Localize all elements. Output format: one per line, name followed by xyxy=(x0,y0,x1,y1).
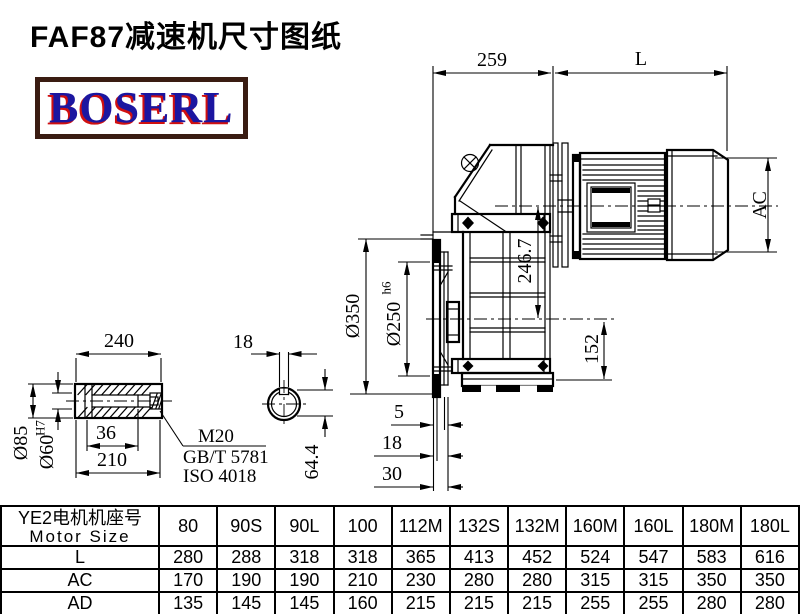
table-cell: 452 xyxy=(508,546,566,569)
thread-standard-iso-label: ISO 4018 xyxy=(183,466,256,487)
dim-30-label: 30 xyxy=(382,463,402,485)
terminal-box xyxy=(648,199,660,212)
page-title: FAF87减速机尺寸图纸 xyxy=(30,12,342,56)
table-cell: 145 xyxy=(217,592,275,614)
bolt-diamond-icon xyxy=(537,217,549,230)
thread-size-label: M20 xyxy=(198,426,234,447)
table-cell: 547 xyxy=(624,546,682,569)
dim-246-7-label: 246.7 xyxy=(514,239,536,284)
dim-36-label: 36 xyxy=(96,422,116,444)
table-col-header: 160L xyxy=(624,506,682,546)
table-row-AC: AC 170 190 190 210 230 280 280 315 315 3… xyxy=(1,569,799,592)
drawing-sheet: 259 L xyxy=(0,0,800,614)
dim-85-label: Ø85 xyxy=(10,426,32,460)
dim-60-tolerance-label: H7 xyxy=(33,420,48,436)
table-cell: 318 xyxy=(275,546,333,569)
table-cell: 215 xyxy=(392,592,450,614)
boserl-logo-text: BOSERL xyxy=(49,83,234,132)
table-cell: 524 xyxy=(566,546,624,569)
table-col-header: 160M xyxy=(566,506,624,546)
dim-AC: AC xyxy=(715,158,777,252)
table-cell: 255 xyxy=(624,592,682,614)
table-header-motor-size: YE2电机机座号 Motor Size xyxy=(1,506,159,546)
dim-152: 152 xyxy=(556,322,612,380)
dim-AC-label: AC xyxy=(749,191,771,219)
dim-210: 210 xyxy=(76,420,160,478)
table-cell: 215 xyxy=(450,592,508,614)
dim-250-tolerance-label: h6 xyxy=(379,281,394,295)
motor-adapter xyxy=(550,143,573,267)
table-cell: 365 xyxy=(392,546,450,569)
boserl-logo: BOSERL xyxy=(35,77,248,139)
fan-cover xyxy=(667,150,728,260)
dim-240-label: 240 xyxy=(104,330,134,352)
dim-5-label: 5 xyxy=(394,401,404,423)
bolt-diamond-icon xyxy=(463,361,474,372)
table-cell: 230 xyxy=(392,569,450,592)
dim-64-4: 64.4 xyxy=(297,369,333,480)
motor xyxy=(572,150,728,260)
table-cell: 288 xyxy=(217,546,275,569)
table-col-header: 100 xyxy=(334,506,392,546)
shaft-detail-view: 240 Ø85 Ø60 H7 36 xyxy=(10,330,269,487)
table-row-AD: AD 135 145 145 160 215 215 215 255 255 2… xyxy=(1,592,799,614)
table-col-header: 90L xyxy=(275,506,333,546)
thread-callout: M20 GB/T 5781 ISO 4018 xyxy=(160,411,269,487)
table-row-label: AD xyxy=(1,592,159,614)
table-cell: 280 xyxy=(450,569,508,592)
base-plate xyxy=(462,373,553,393)
table-cell: 280 xyxy=(508,569,566,592)
table-cell: 280 xyxy=(159,546,217,569)
dim-18-label: 18 xyxy=(382,432,402,454)
table-row-label: AC xyxy=(1,569,159,592)
table-row-label: L xyxy=(1,546,159,569)
motor-size-table: YE2电机机座号 Motor Size 80 90S 90L 100 112M … xyxy=(0,505,800,614)
bolt-diamond-icon xyxy=(538,361,549,372)
table-cell: 413 xyxy=(450,546,508,569)
dim-key-18: 18 xyxy=(233,331,317,387)
dim-250h6: Ø250 h6 xyxy=(379,262,430,376)
bolt-diamond-icon xyxy=(462,217,474,230)
table-cell: 210 xyxy=(334,569,392,592)
table-cell: 280 xyxy=(741,592,799,614)
table-cell: 215 xyxy=(508,592,566,614)
dim-64-4-label: 64.4 xyxy=(301,445,323,480)
flange-band-upper xyxy=(433,214,550,232)
table-cell: 190 xyxy=(217,569,275,592)
table-col-header: 180L xyxy=(741,506,799,546)
table-cell: 170 xyxy=(159,569,217,592)
table-col-header: 90S xyxy=(217,506,275,546)
dim-246-7: 246.7 xyxy=(514,207,538,318)
table-cell: 315 xyxy=(624,569,682,592)
dim-152-label: 152 xyxy=(581,334,603,364)
table-cell: 583 xyxy=(683,546,741,569)
table-col-header: 132S xyxy=(450,506,508,546)
table-cell: 318 xyxy=(334,546,392,569)
table-cell: 315 xyxy=(566,569,624,592)
thread-standard-gb-label: GB/T 5781 xyxy=(183,447,269,468)
main-view: 259 L xyxy=(342,48,778,491)
dim-350-label: Ø350 xyxy=(342,294,364,338)
motor-nameplate xyxy=(587,183,635,232)
table-header-row: YE2电机机座号 Motor Size 80 90S 90L 100 112M … xyxy=(1,506,799,546)
dim-210-label: 210 xyxy=(97,449,127,471)
dim-L-label: L xyxy=(635,48,647,70)
table-cell: 135 xyxy=(159,592,217,614)
table-cell: 350 xyxy=(741,569,799,592)
table-col-header: 180M xyxy=(683,506,741,546)
dim-259-label: 259 xyxy=(477,49,507,71)
dim-60-label: Ø60 xyxy=(36,435,58,469)
dim-240: 240 xyxy=(76,330,161,382)
dim-key-18-label: 18 xyxy=(233,331,253,353)
flange-band-lower xyxy=(452,359,550,373)
table-col-header: 132M xyxy=(508,506,566,546)
table-cell: 145 xyxy=(275,592,333,614)
table-cell: 255 xyxy=(566,592,624,614)
table-row-L: L 280 288 318 318 365 413 452 524 547 58… xyxy=(1,546,799,569)
technical-drawing: 259 L xyxy=(0,0,800,505)
dim-250-label: Ø250 xyxy=(383,302,405,346)
table-cell: 190 xyxy=(275,569,333,592)
table-header-en: Motor Size xyxy=(2,528,158,545)
dim-60H7: Ø60 H7 xyxy=(33,372,72,469)
table-col-header: 112M xyxy=(392,506,450,546)
table-cell: 160 xyxy=(334,592,392,614)
table-header-cn: YE2电机机座号 xyxy=(2,508,158,528)
table-cell: 350 xyxy=(683,569,741,592)
table-cell: 616 xyxy=(741,546,799,569)
table-col-header: 80 xyxy=(159,506,217,546)
dim-face-offsets: 5 18 30 xyxy=(374,397,463,491)
table-cell: 280 xyxy=(683,592,741,614)
